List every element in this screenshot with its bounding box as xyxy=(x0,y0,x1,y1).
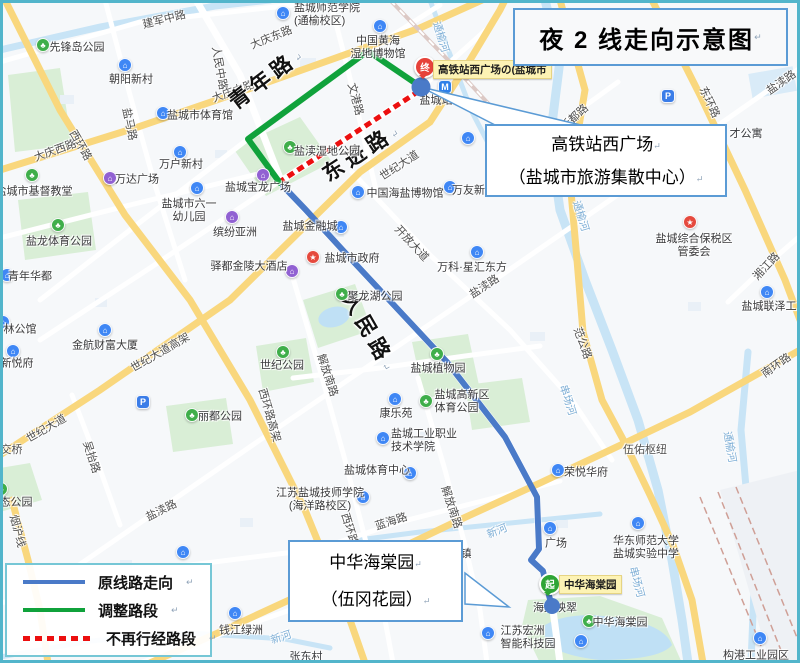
route-map[interactable]: 建军中路人民中路大庆中路大庆东路大庆西路西环路盐马路文港路青年路↵东进路↵人民路… xyxy=(0,0,800,663)
newline-mark: ↵ xyxy=(696,174,704,184)
route-endpoint-garden xyxy=(544,598,560,614)
callout-garden-line2: （伍冈花园） xyxy=(321,590,423,609)
callout-station: 高铁站西广场↵ （盐城市旅游集散中心）↵ xyxy=(485,124,727,197)
legend-label: 不再行经路段 xyxy=(106,628,196,649)
title-box: 夜 2 线走向示意图↵ xyxy=(513,8,788,66)
terminal-badge-text: 终 xyxy=(420,60,430,74)
newline-mark: ↵ xyxy=(754,32,762,43)
newline-mark: ↵ xyxy=(423,596,431,606)
callout-station-line1: 高铁站西广场 xyxy=(551,135,653,154)
newline-mark: ↵ xyxy=(186,577,194,588)
legend-item-adjusted-segment: 调整路段↵ xyxy=(15,600,202,621)
callout-garden-line1: 中华海棠园 xyxy=(329,553,414,572)
legend-label: 原线路走向 xyxy=(98,572,173,593)
legend: 原线路走向↵ 调整路段↵ 不再行经路段↵ xyxy=(5,563,212,657)
red-dashed-line-sample xyxy=(23,636,93,641)
page-title: 夜 2 线走向示意图 xyxy=(539,20,754,55)
blue-line-sample xyxy=(23,580,85,584)
newline-mark: ↵ xyxy=(209,633,217,644)
newline-mark: ↵ xyxy=(171,605,179,616)
newline-mark: ↵ xyxy=(653,141,661,151)
callout-station-line2: （盐城市旅游集散中心） xyxy=(509,168,696,187)
legend-item-removed-segment: 不再行经路段↵ xyxy=(15,628,202,649)
green-line-sample xyxy=(23,608,85,612)
start-stop-label: 中华海棠园 xyxy=(559,575,622,594)
legend-label: 调整路段 xyxy=(98,600,158,621)
legend-item-original-route: 原线路走向↵ xyxy=(15,572,202,593)
newline-mark: ↵ xyxy=(414,559,422,569)
callout-garden: 中华海棠园↵ （伍冈花园）↵ xyxy=(288,540,463,622)
start-stop-marker[interactable]: 起 xyxy=(539,573,561,595)
start-badge-text: 起 xyxy=(545,577,555,591)
